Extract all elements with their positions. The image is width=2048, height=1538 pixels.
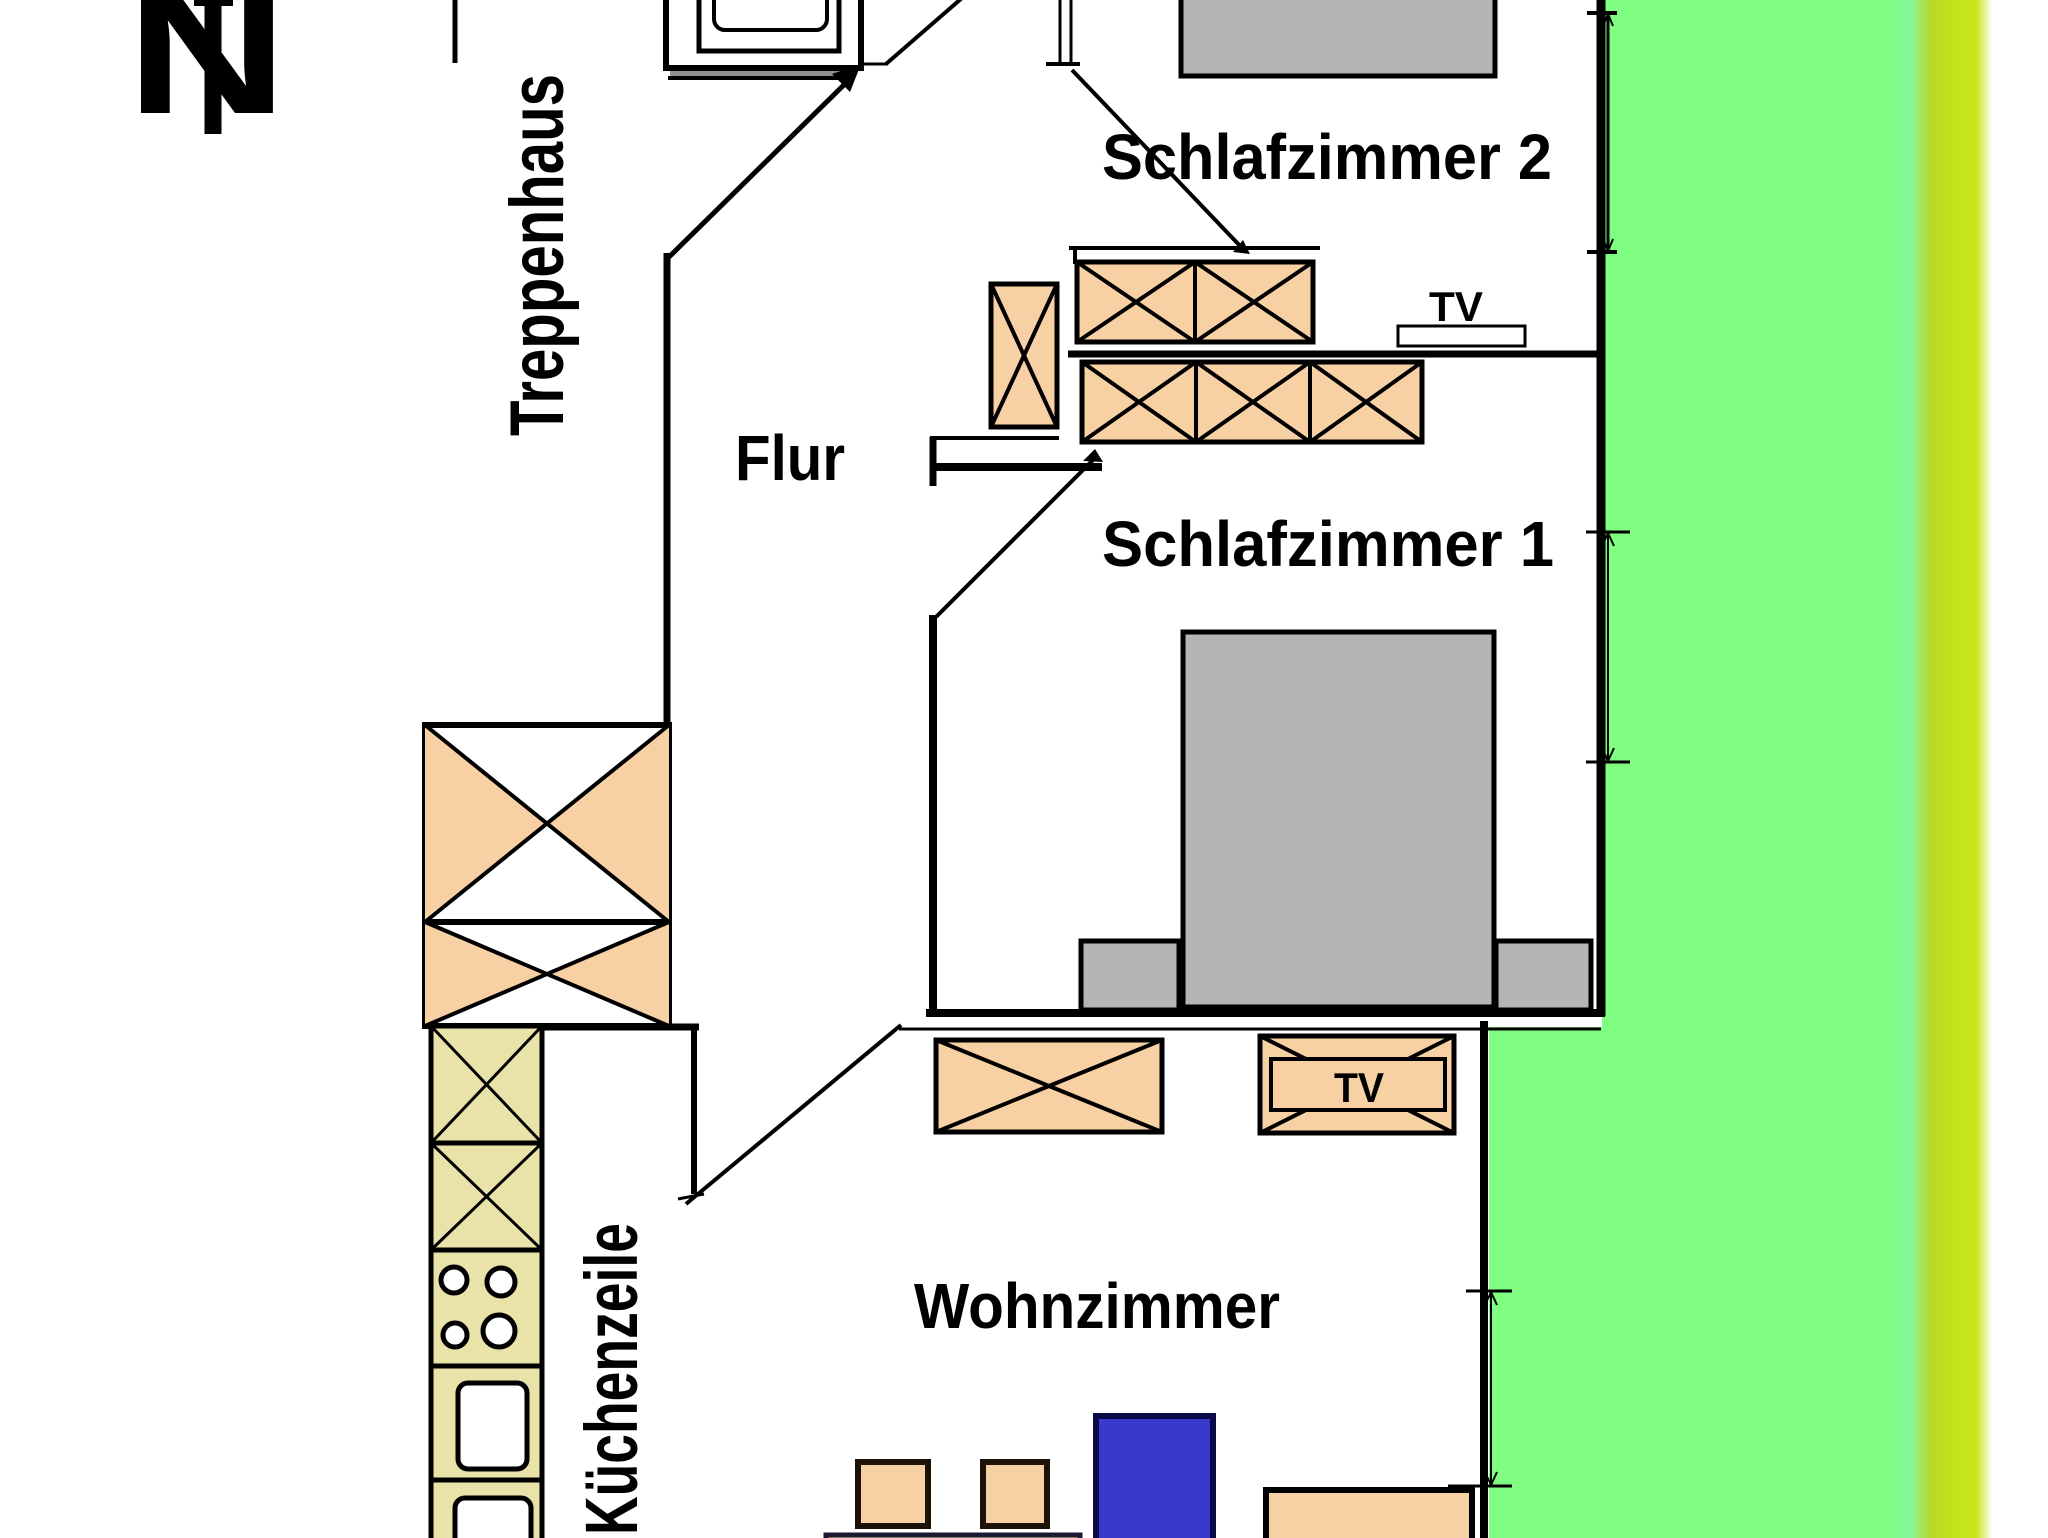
svg-text:Schlafzimmer 1: Schlafzimmer 1: [1102, 508, 1554, 580]
svg-text:Treppenhaus: Treppenhaus: [495, 74, 580, 436]
svg-text:TV: TV: [1334, 1064, 1384, 1111]
svg-text:Flur: Flur: [735, 422, 845, 494]
svg-text:Wohnzimmer: Wohnzimmer: [914, 1270, 1280, 1342]
svg-text:Schlafzimmer 2: Schlafzimmer 2: [1102, 121, 1552, 193]
svg-text:Küchenzeile: Küchenzeile: [570, 1223, 653, 1535]
svg-text:TV: TV: [1429, 283, 1483, 330]
